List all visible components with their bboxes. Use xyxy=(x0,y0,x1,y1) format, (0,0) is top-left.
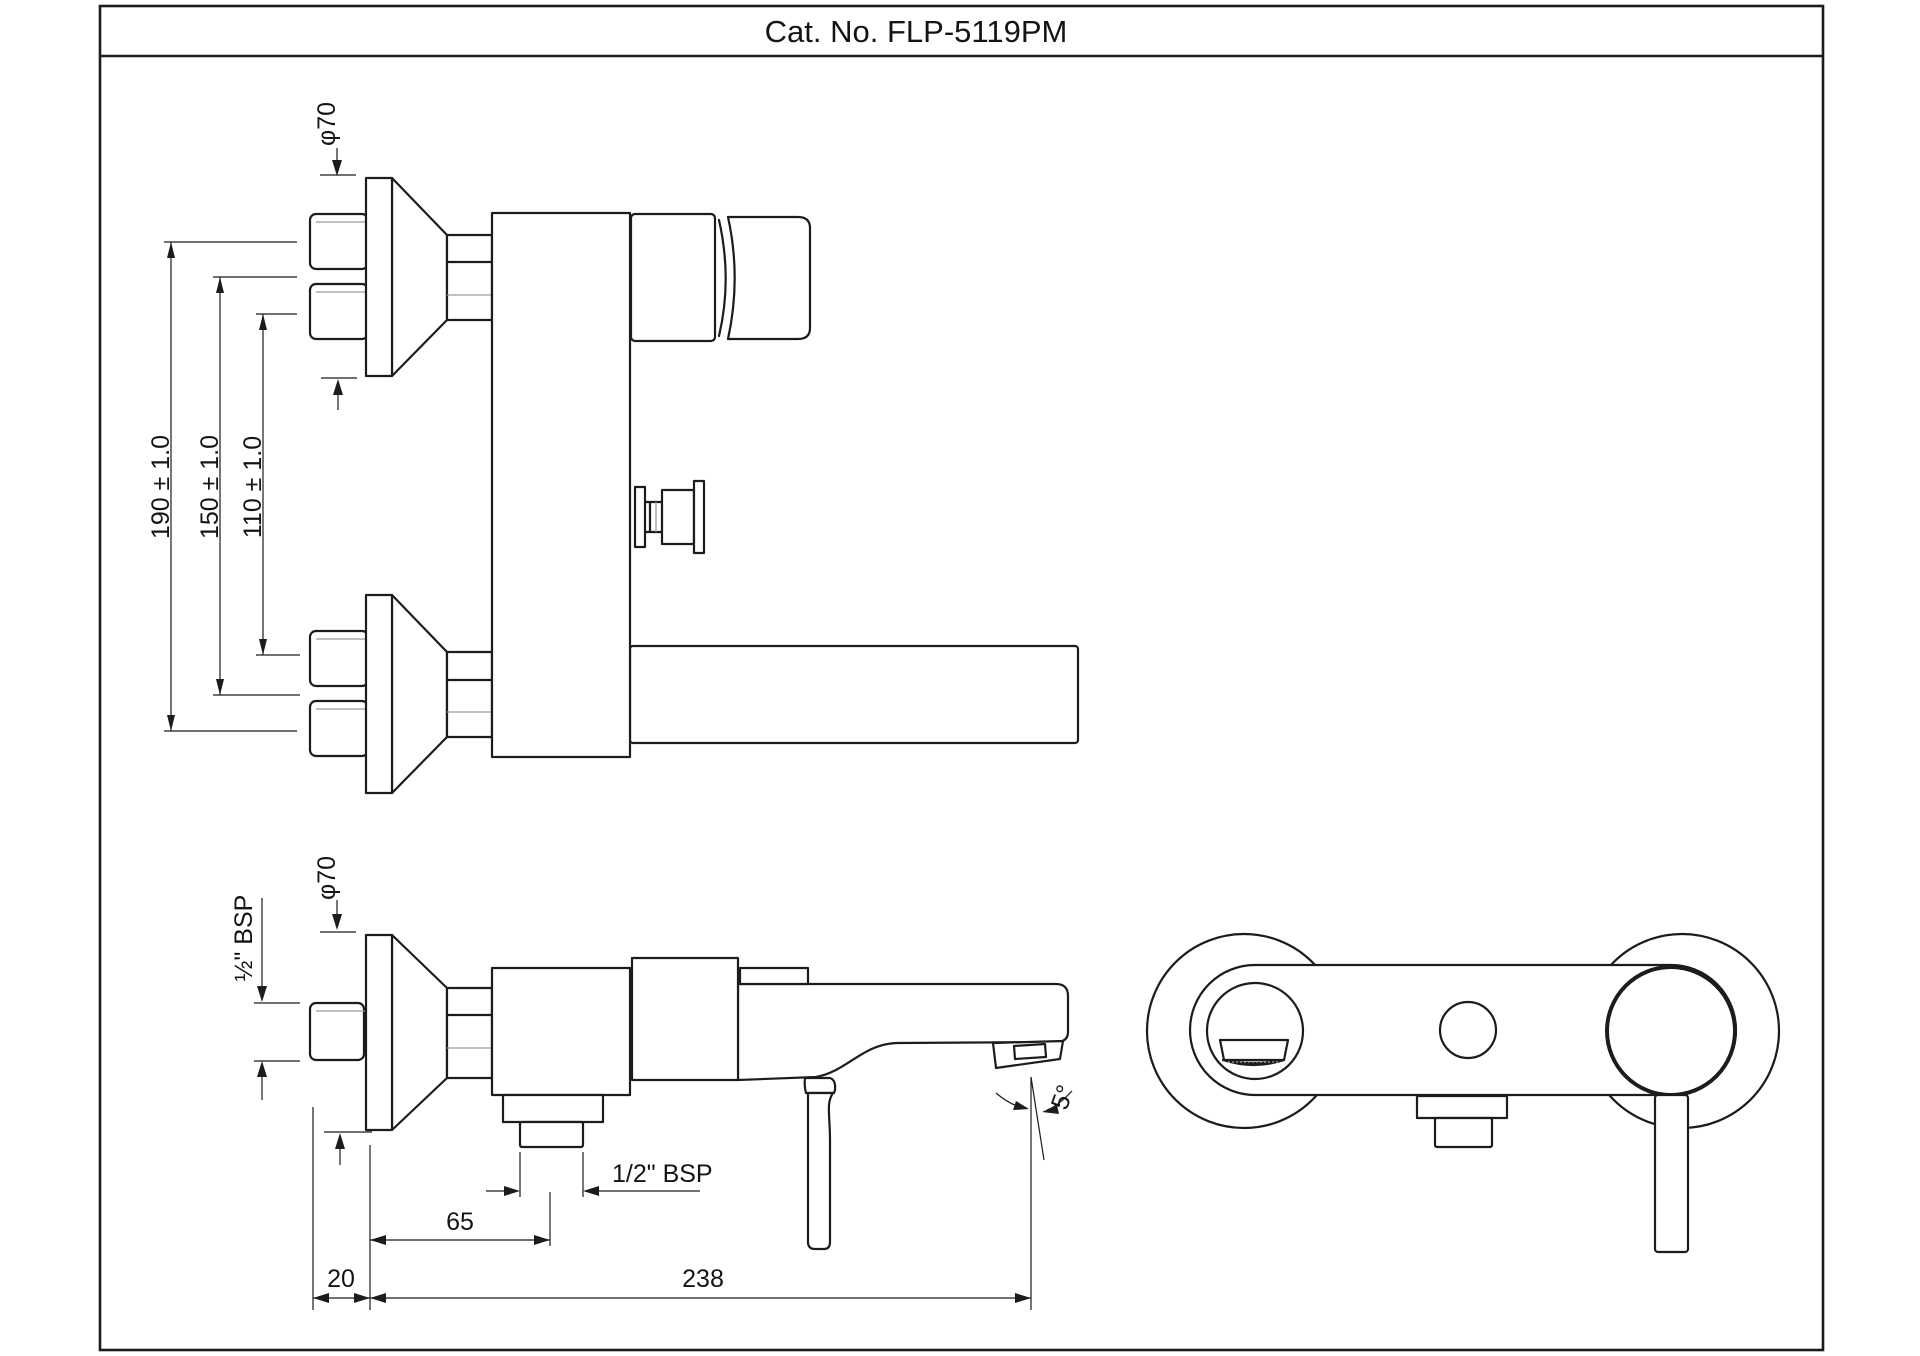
diverter-button xyxy=(1440,1002,1496,1058)
handle-lever-side xyxy=(805,1078,835,1249)
connector-tube xyxy=(447,652,492,737)
outlet-nipple xyxy=(1435,1118,1492,1147)
dim-label: 238 xyxy=(682,1265,724,1293)
escutcheon-flange xyxy=(366,178,392,376)
diverter-cap xyxy=(694,481,704,553)
inlet-assembly-side xyxy=(310,935,492,1130)
dim-label: φ70 xyxy=(313,856,341,900)
escutcheon-flange xyxy=(366,595,392,793)
escutcheon-cone xyxy=(392,595,447,793)
mixer-body-side xyxy=(492,968,630,1095)
outlet-nipple xyxy=(520,1122,583,1147)
dim-label: 190 ± 1.0 xyxy=(147,435,175,539)
side-view: φ70 ½" BSP 1/2" BSP xyxy=(230,856,1080,1310)
shower-outlet-front xyxy=(1417,1096,1507,1147)
outlet-box xyxy=(503,1095,603,1122)
aerator-inner xyxy=(1014,1044,1046,1059)
mixer-body-plan xyxy=(492,213,630,757)
handle-plan xyxy=(631,214,810,341)
top-tab xyxy=(740,968,808,984)
handle-neck-arc xyxy=(719,220,726,336)
diverter-body xyxy=(662,490,694,544)
inlet-assembly-top xyxy=(310,178,492,376)
dim-label: φ70 xyxy=(313,102,341,146)
dim-spout-angle: 5° xyxy=(996,1077,1080,1160)
dim-outlet-thread: 1/2" BSP xyxy=(486,1152,713,1197)
dim-label: 20 xyxy=(327,1265,355,1293)
spout-plan xyxy=(630,646,1078,743)
dim-label: 65 xyxy=(446,1208,474,1236)
inlet-assembly-bottom xyxy=(310,595,492,793)
dim-label: 150 ± 1.0 xyxy=(196,435,224,539)
diverter-plan xyxy=(635,481,704,553)
drawing-title: Cat. No. FLP-5119PM xyxy=(765,14,1068,49)
connector-tube xyxy=(447,988,492,1078)
diverter-washer xyxy=(635,487,645,547)
dim-20: 20 xyxy=(313,1107,370,1310)
dim-label: 110 ± 1.0 xyxy=(239,436,267,538)
dim-label: ½" BSP xyxy=(230,895,258,982)
lever-collar xyxy=(805,1078,835,1093)
outlet-box xyxy=(1417,1096,1507,1118)
dim-inlet-thread: ½" BSP xyxy=(230,895,300,1100)
handle-lever-front xyxy=(1655,1095,1688,1252)
lever-bar xyxy=(808,1093,833,1249)
connector-tube xyxy=(447,235,492,320)
top-view: φ70 190 ± 1.0 150 ± 1.0 xyxy=(147,102,1078,793)
escutcheon-cone xyxy=(392,935,447,1130)
escutcheon-flange xyxy=(366,935,392,1130)
escutcheon-cone xyxy=(392,178,447,376)
drawing-sheet: Cat. No. FLP-5119PM xyxy=(0,0,1920,1356)
dim-label: 1/2" BSP xyxy=(612,1160,713,1188)
handle-base xyxy=(631,214,715,341)
dim-110: 110 ± 1.0 xyxy=(239,314,300,655)
cartridge-collar xyxy=(632,958,738,1080)
handle-cap xyxy=(728,217,810,339)
shower-outlet-side xyxy=(503,1095,603,1147)
front-view xyxy=(1147,934,1779,1252)
spout-tip xyxy=(993,1041,1063,1068)
dim-65: 65 xyxy=(370,1192,550,1246)
